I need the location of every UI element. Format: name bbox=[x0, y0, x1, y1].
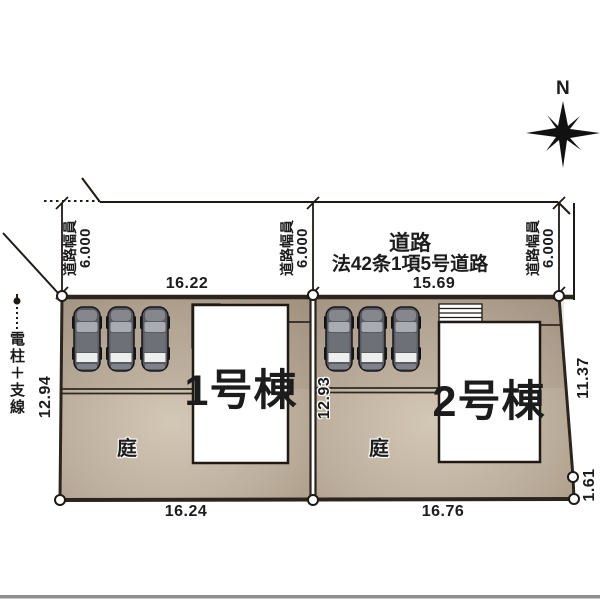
guy-wire-line bbox=[3, 233, 58, 293]
dim-plot2-depth-left: 12.93 bbox=[316, 373, 334, 423]
building-1-label: 1号棟 bbox=[171, 356, 311, 418]
car-icon bbox=[72, 307, 102, 371]
road-width-label-right: 道路幅員 6.000 bbox=[525, 210, 557, 286]
compass-north-label: N bbox=[556, 78, 570, 100]
utility-pole-label: 電柱＋支線 bbox=[6, 331, 27, 426]
dim-plot2-depth-right: 11.37 bbox=[575, 353, 593, 403]
bottom-bar bbox=[0, 595, 600, 599]
dim-plot2-frontage-bottom: 16.76 bbox=[413, 503, 473, 521]
site-plan-canvas: N 道路 法42条1項5号道路 道路幅員 6.000 道路幅員 6.000 道路… bbox=[0, 0, 600, 602]
car-icon bbox=[391, 307, 421, 371]
road-designation: 法42条1項5号道路 bbox=[300, 249, 520, 276]
plot-1-garden-label: 庭 bbox=[117, 432, 137, 461]
car-icon bbox=[324, 307, 354, 371]
plot-2-garden-label: 庭 bbox=[369, 432, 389, 461]
dim-plot2-frontage-top: 15.69 bbox=[404, 275, 464, 293]
building-2-label: 2号棟 bbox=[419, 367, 559, 429]
road-width-label-middle: 道路幅員 6.000 bbox=[279, 210, 311, 286]
site-plan-drawing bbox=[0, 0, 600, 602]
dim-plot1-frontage-bottom: 16.24 bbox=[156, 503, 216, 521]
utility-pole-icon bbox=[14, 294, 21, 330]
car-icon bbox=[357, 307, 387, 371]
road-width-label-left: 道路幅員 6.000 bbox=[62, 210, 94, 286]
car-icon bbox=[140, 307, 170, 371]
car-icon bbox=[106, 307, 136, 371]
compass-rose-icon bbox=[526, 101, 600, 168]
dim-plot2-edge-short: 1.61 bbox=[581, 465, 599, 505]
dim-plot1-depth-left: 12.94 bbox=[37, 372, 55, 422]
dim-plot1-frontage-top: 16.22 bbox=[157, 275, 217, 293]
